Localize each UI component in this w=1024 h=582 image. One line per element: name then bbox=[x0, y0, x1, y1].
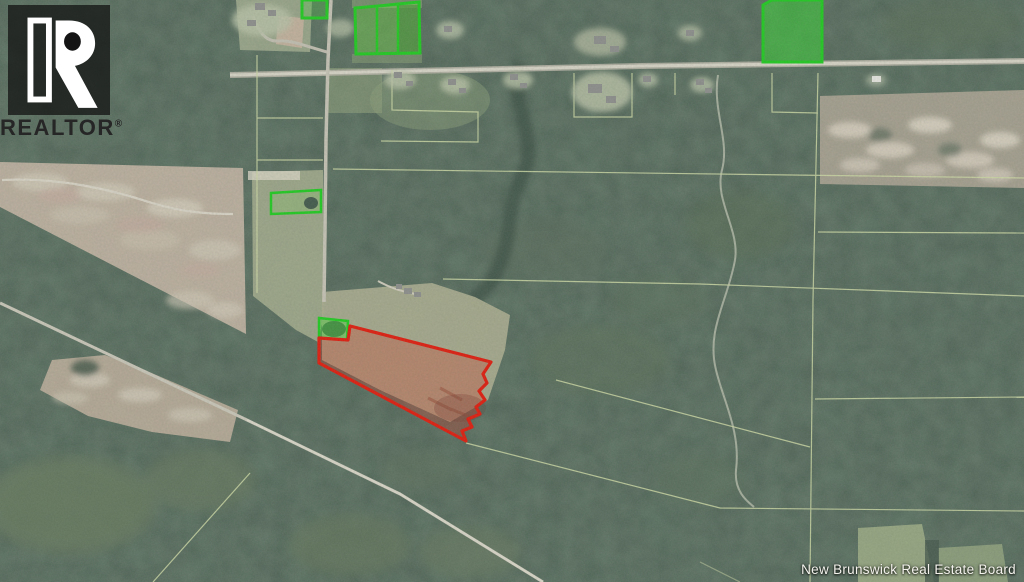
realtor-logo-box bbox=[8, 5, 110, 115]
realtor-logo-text: REALTOR bbox=[0, 115, 115, 140]
image-grain-light bbox=[0, 0, 1024, 582]
satellite-map bbox=[0, 0, 1024, 582]
realtor-r-icon bbox=[17, 12, 101, 108]
realtor-logo-word: REALTOR® bbox=[0, 117, 130, 139]
registered-mark: ® bbox=[115, 119, 124, 130]
listing-map-screenshot: REALTOR® New Brunswick Real Estate Board bbox=[0, 0, 1024, 582]
attribution-watermark: New Brunswick Real Estate Board bbox=[801, 562, 1016, 577]
realtor-logo: REALTOR® bbox=[0, 0, 130, 139]
